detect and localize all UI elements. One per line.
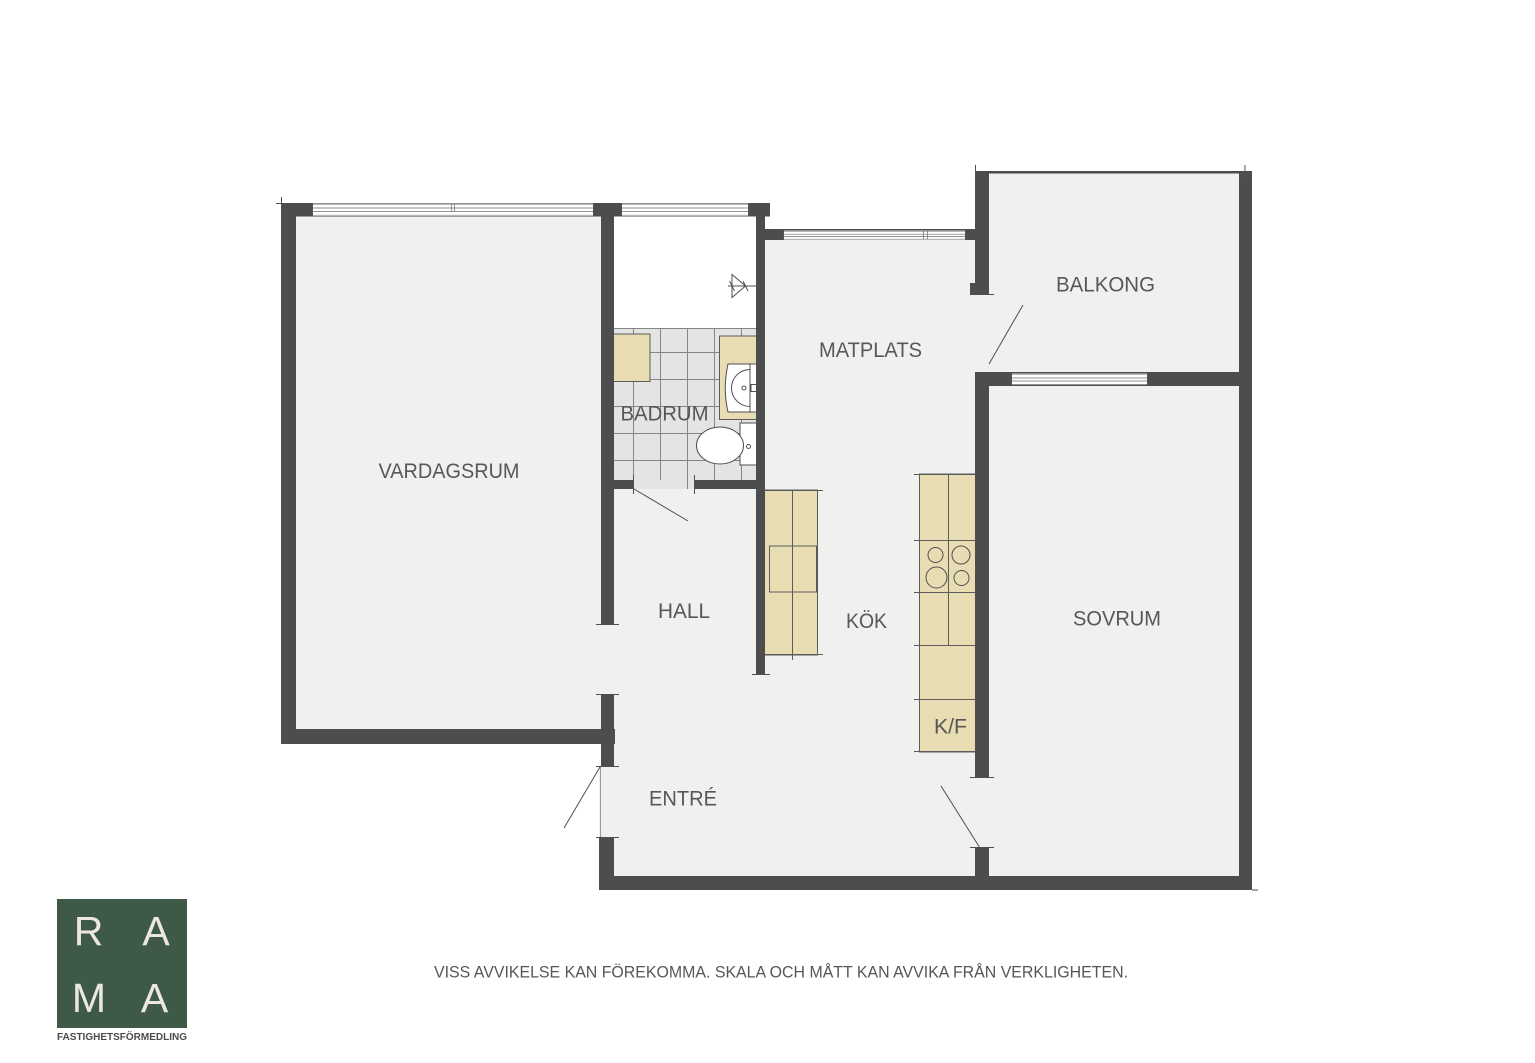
svg-text:M: M [72, 975, 106, 1021]
svg-text:FASTIGHETSFÖRMEDLING: FASTIGHETSFÖRMEDLING [57, 1030, 187, 1043]
svg-text:VARDAGSRUM: VARDAGSRUM [379, 460, 520, 483]
svg-text:A: A [142, 908, 170, 954]
svg-text:R: R [74, 908, 104, 954]
svg-text:A: A [141, 975, 169, 1021]
svg-text:HALL: HALL [658, 600, 710, 623]
svg-text:KÖK: KÖK [846, 610, 887, 633]
svg-text:SOVRUM: SOVRUM [1073, 608, 1161, 631]
svg-text:K/F: K/F [934, 716, 967, 739]
svg-text:MATPLATS: MATPLATS [819, 339, 922, 362]
svg-text:ENTRÉ: ENTRÉ [649, 788, 717, 811]
svg-text:BALKONG: BALKONG [1056, 274, 1155, 297]
svg-text:BADRUM: BADRUM [621, 403, 709, 426]
svg-text:VISS AVVIKELSE KAN FÖREKOMMA.: VISS AVVIKELSE KAN FÖREKOMMA. SKALA OCH … [434, 963, 1128, 982]
